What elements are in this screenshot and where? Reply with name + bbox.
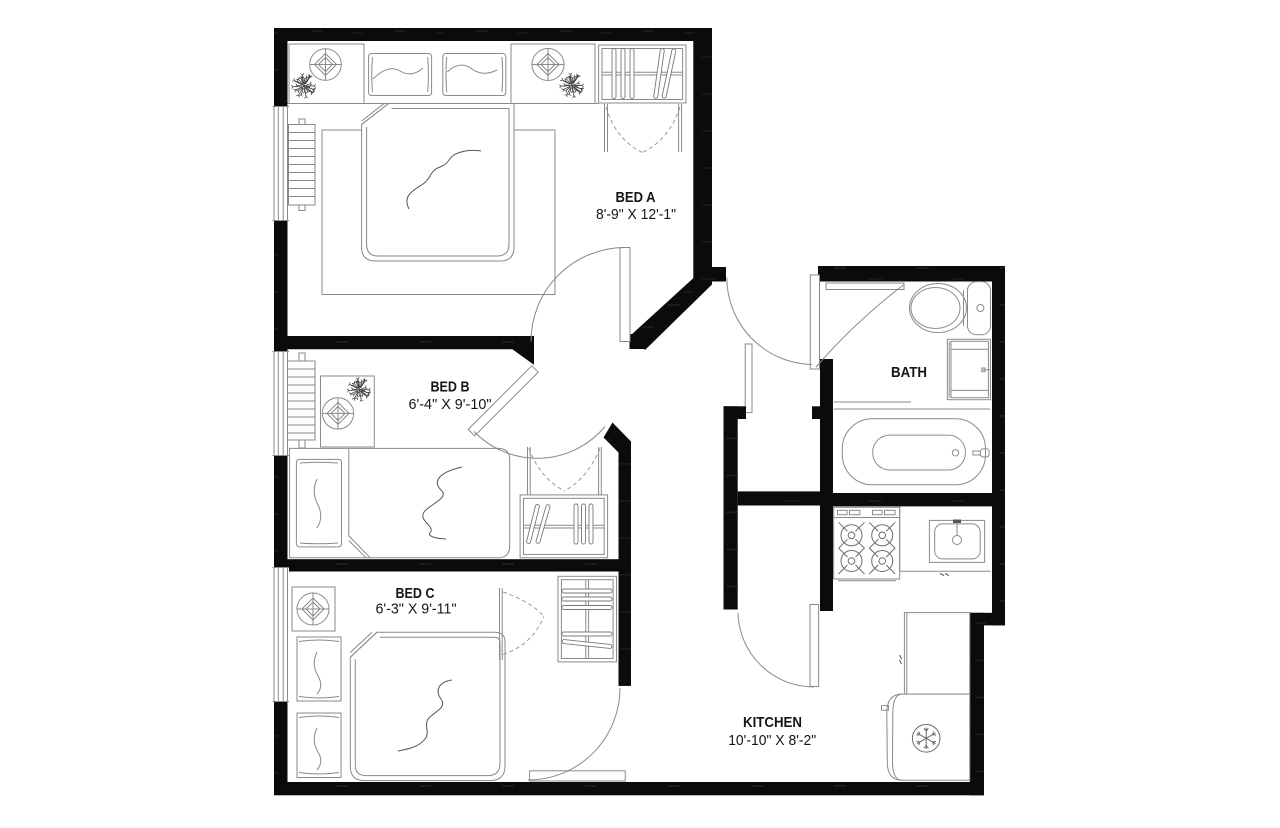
svg-text:BATH: BATH: [891, 364, 927, 381]
svg-text:6'-4" X 9'-10": 6'-4" X 9'-10": [409, 396, 492, 413]
svg-text:10'-10" X 8'-2": 10'-10" X 8'-2": [728, 732, 816, 749]
svg-text:8'-9" X 12'-1": 8'-9" X 12'-1": [596, 206, 676, 223]
svg-text:KITCHEN: KITCHEN: [743, 714, 802, 731]
svg-text:6'-3" X 9'-11": 6'-3" X 9'-11": [376, 600, 457, 617]
svg-text:BED B: BED B: [431, 379, 470, 396]
svg-text:BED A: BED A: [616, 189, 656, 206]
